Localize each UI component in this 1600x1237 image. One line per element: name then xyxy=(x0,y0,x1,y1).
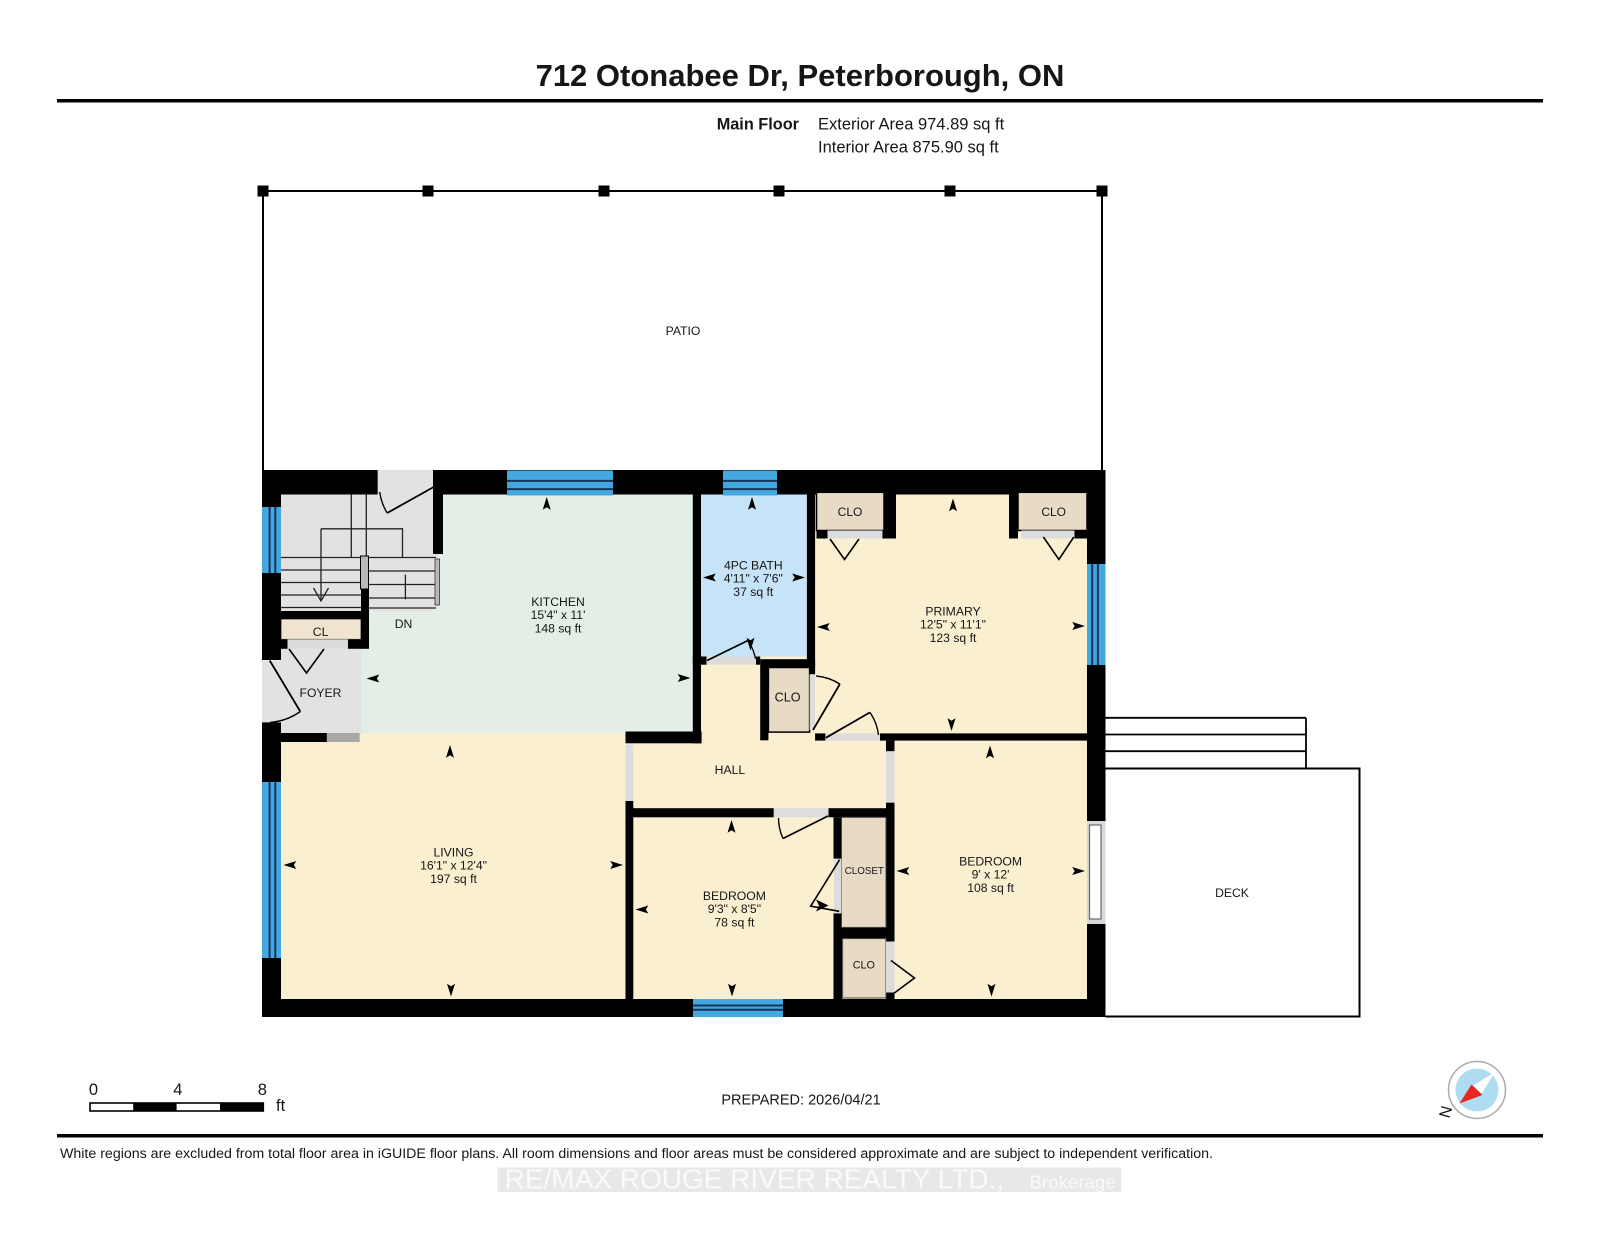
svg-text:37 sq ft: 37 sq ft xyxy=(733,585,774,599)
svg-text:148 sq ft: 148 sq ft xyxy=(535,621,582,635)
svg-text:Main Floor: Main Floor xyxy=(717,116,800,134)
svg-text:712 Otonabee Dr, Peterborough,: 712 Otonabee Dr, Peterborough, ON xyxy=(536,58,1065,93)
svg-text:Exterior Area 974.89 sq ft: Exterior Area 974.89 sq ft xyxy=(818,116,1005,134)
svg-text:RE/MAX ROUGE RIVER REALTY LTD.: RE/MAX ROUGE RIVER REALTY LTD., xyxy=(505,1164,1004,1195)
svg-text:LIVING: LIVING xyxy=(434,846,474,860)
svg-text:FOYER: FOYER xyxy=(300,686,342,700)
svg-text:4: 4 xyxy=(173,1081,182,1099)
svg-text:BEDROOM: BEDROOM xyxy=(959,855,1022,869)
svg-text:78 sq ft: 78 sq ft xyxy=(714,915,755,929)
svg-text:9'3" x 8'5": 9'3" x 8'5" xyxy=(708,902,761,916)
svg-text:9' x 12': 9' x 12' xyxy=(972,868,1010,882)
svg-text:BEDROOM: BEDROOM xyxy=(703,889,766,903)
svg-text:HALL: HALL xyxy=(715,763,746,777)
svg-text:0: 0 xyxy=(89,1081,98,1099)
svg-text:DECK: DECK xyxy=(1215,886,1249,900)
svg-text:CLO: CLO xyxy=(853,960,875,972)
svg-text:DN: DN xyxy=(395,617,413,631)
svg-text:4'11" x 7'6": 4'11" x 7'6" xyxy=(724,572,783,586)
svg-text:ft: ft xyxy=(276,1097,286,1115)
svg-text:PATIO: PATIO xyxy=(666,324,701,338)
svg-text:16'1" x 12'4": 16'1" x 12'4" xyxy=(420,859,487,873)
svg-text:Interior Area 875.90 sq ft: Interior Area 875.90 sq ft xyxy=(818,138,999,156)
svg-text:CL: CL xyxy=(313,625,329,639)
svg-text:108 sq ft: 108 sq ft xyxy=(967,881,1014,895)
svg-text:123 sq ft: 123 sq ft xyxy=(930,631,977,645)
svg-text:197 sq ft: 197 sq ft xyxy=(430,872,477,886)
svg-text:12'5" x 11'1": 12'5" x 11'1" xyxy=(920,618,986,632)
svg-text:8: 8 xyxy=(258,1081,267,1099)
svg-text:PREPARED: 2026/04/21: PREPARED: 2026/04/21 xyxy=(721,1093,880,1109)
svg-text:Brokerage: Brokerage xyxy=(1030,1172,1116,1193)
svg-text:CLO: CLO xyxy=(1041,505,1066,519)
svg-text:15'4" x 11': 15'4" x 11' xyxy=(531,608,586,622)
svg-text:KITCHEN: KITCHEN xyxy=(531,595,585,609)
svg-text:CLO: CLO xyxy=(838,505,863,519)
svg-text:CLOSET: CLOSET xyxy=(845,866,884,877)
svg-text:4PC BATH: 4PC BATH xyxy=(724,559,783,573)
svg-text:CLO: CLO xyxy=(775,691,801,705)
svg-text:White regions are excluded fro: White regions are excluded from total fl… xyxy=(60,1146,1213,1162)
svg-text:PRIMARY: PRIMARY xyxy=(925,605,980,619)
